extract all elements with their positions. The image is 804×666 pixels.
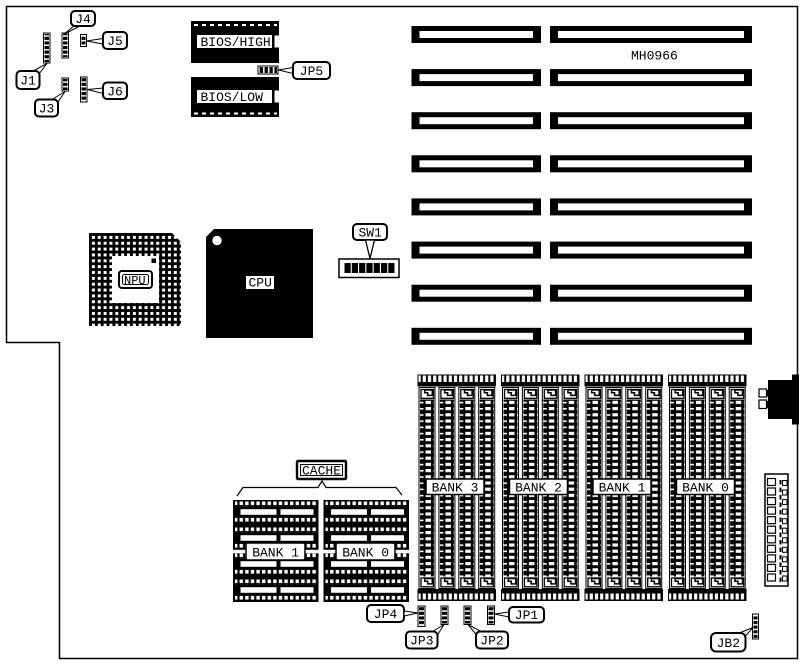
svg-text:SW1: SW1: [359, 226, 383, 241]
svg-text:J3: J3: [39, 102, 55, 117]
svg-text:BANK 1: BANK 1: [252, 546, 299, 561]
svg-text:BANK 1: BANK 1: [599, 481, 646, 496]
svg-text:BANK 0: BANK 0: [342, 546, 389, 561]
svg-text:MH0966: MH0966: [631, 49, 678, 64]
svg-text:CPU: CPU: [249, 276, 272, 291]
svg-text:BIOS/HIGH: BIOS/HIGH: [201, 35, 271, 50]
svg-text:CACHE: CACHE: [302, 464, 341, 479]
svg-text:JB2: JB2: [717, 636, 740, 651]
svg-text:JP2: JP2: [480, 634, 503, 649]
svg-text:J1: J1: [20, 74, 36, 89]
svg-text:BANK 3: BANK 3: [432, 481, 479, 496]
svg-text:NPU: NPU: [124, 274, 146, 288]
svg-text:J6: J6: [107, 85, 123, 100]
svg-text:JP4: JP4: [374, 607, 398, 622]
svg-text:J4: J4: [75, 12, 91, 27]
svg-text:JP5: JP5: [300, 64, 323, 79]
svg-text:BANK 0: BANK 0: [682, 481, 729, 496]
svg-text:BANK 2: BANK 2: [515, 481, 562, 496]
svg-text:JP1: JP1: [515, 608, 539, 623]
svg-text:BIOS/LOW: BIOS/LOW: [201, 90, 264, 105]
svg-text:JP3: JP3: [410, 634, 433, 649]
svg-text:J5: J5: [107, 34, 123, 49]
